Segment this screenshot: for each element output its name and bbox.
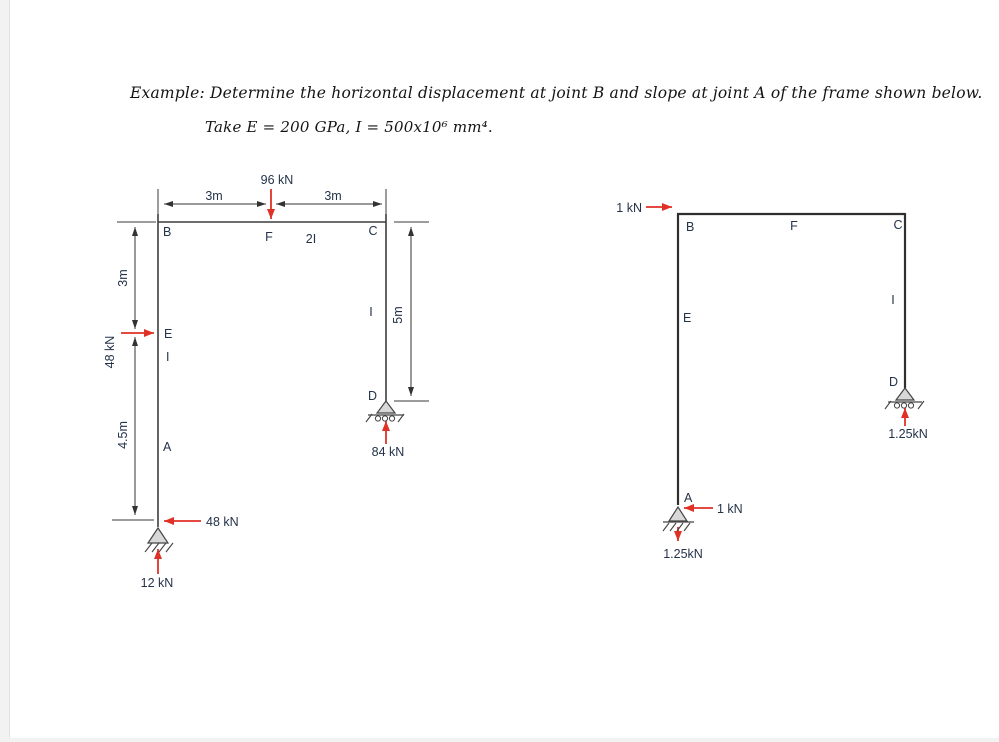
virtual-frame-members bbox=[677, 213, 905, 505]
real-frame-diagram: B F C E A D 2I I I 3m 3m 3m 4.5m 5m 96 k… bbox=[103, 173, 429, 590]
virtual-joint-label-e: E bbox=[683, 311, 691, 325]
real-dim-label-left-lower: 4.5m bbox=[116, 421, 130, 449]
real-member-label-left-column: I bbox=[166, 350, 169, 364]
real-reaction-label-a-horizontal: 48 kN bbox=[206, 515, 239, 529]
real-dim-label-top-right: 3m bbox=[324, 189, 341, 203]
frame-diagrams-canvas: B F C E A D 2I I I 3m 3m 3m 4.5m 5m 96 k… bbox=[0, 0, 999, 742]
virtual-member-label-right-column: I bbox=[891, 293, 894, 307]
real-reaction-label-d-vertical: 84 kN bbox=[372, 445, 405, 459]
real-roller-support-d bbox=[366, 401, 404, 422]
real-load-label-48kn-e: 48 kN bbox=[103, 336, 117, 369]
virtual-load-label-1kn: 1 kN bbox=[616, 201, 642, 215]
real-dim-label-top-left: 3m bbox=[205, 189, 222, 203]
virtual-joint-label-d: D bbox=[889, 375, 898, 389]
virtual-joint-label-b: B bbox=[686, 220, 694, 234]
virtual-reaction-label-d-vertical: 1.25kN bbox=[888, 427, 928, 441]
real-dim-label-right: 5m bbox=[391, 306, 405, 323]
real-member-label-beam: 2I bbox=[306, 232, 316, 246]
real-joint-label-a: A bbox=[163, 440, 172, 454]
real-frame-members bbox=[158, 214, 386, 527]
real-joint-label-b: B bbox=[163, 225, 171, 239]
real-dim-label-left-upper: 3m bbox=[116, 269, 130, 286]
real-pin-support-a bbox=[145, 528, 173, 552]
virtual-joint-label-a: A bbox=[684, 491, 693, 505]
virtual-joint-label-c: C bbox=[893, 218, 902, 232]
real-joint-label-c: C bbox=[368, 224, 377, 238]
real-reaction-label-a-vertical: 12 kN bbox=[141, 576, 174, 590]
virtual-roller-support-d bbox=[885, 388, 924, 409]
real-load-label-96kn: 96 kN bbox=[261, 173, 294, 187]
real-joint-label-f: F bbox=[265, 230, 273, 244]
virtual-reaction-label-a-vertical: 1.25kN bbox=[663, 547, 703, 561]
real-member-label-right-column: I bbox=[369, 305, 372, 319]
virtual-frame-diagram: B F C E A D I 1 kN 1 kN 1.25kN 1.25kN bbox=[616, 201, 928, 561]
virtual-reaction-label-a-horizontal: 1 kN bbox=[717, 502, 743, 516]
virtual-joint-label-f: F bbox=[790, 219, 798, 233]
real-joint-label-d: D bbox=[368, 389, 377, 403]
real-joint-label-e: E bbox=[164, 327, 172, 341]
